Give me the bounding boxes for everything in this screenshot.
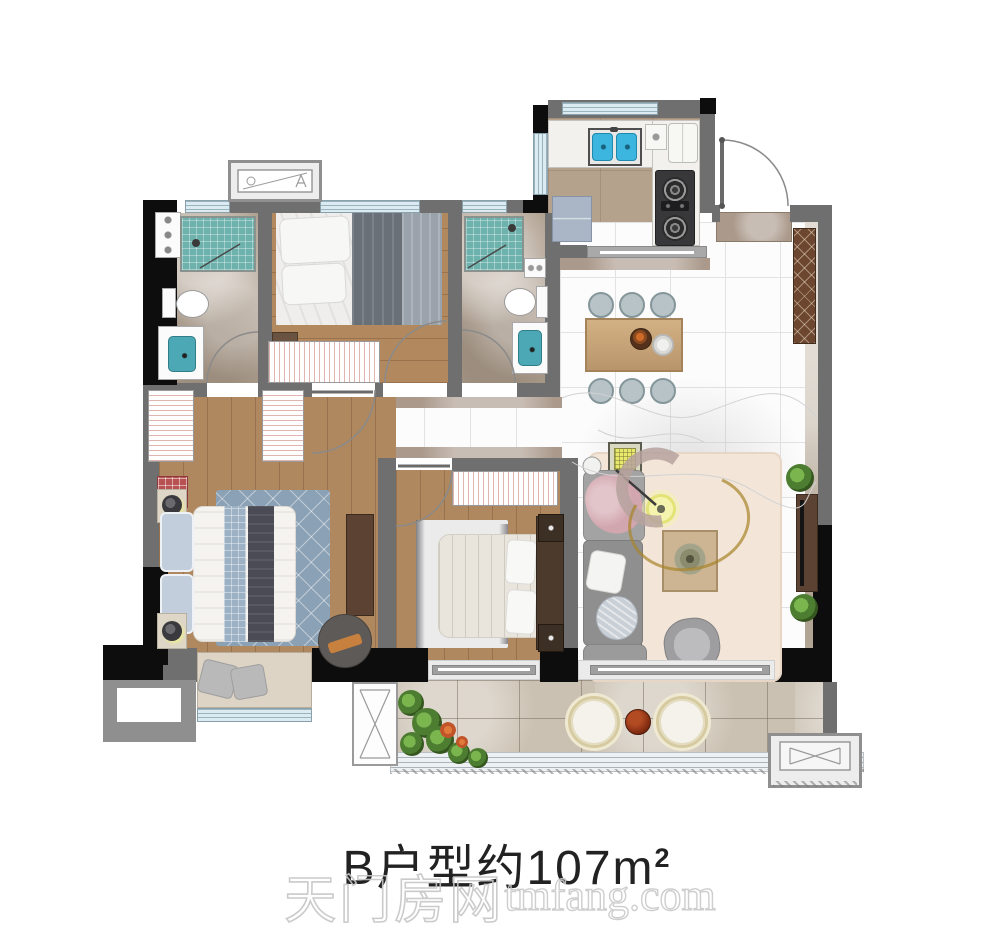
balcony-seat (656, 696, 708, 748)
toilet-tank-1 (162, 288, 176, 318)
window (320, 200, 420, 213)
structural-column (540, 648, 578, 682)
hinge-dot (719, 137, 725, 143)
sliding-door-handle (600, 251, 694, 254)
wall-segment (517, 383, 560, 397)
structural-column (533, 195, 548, 213)
bed-1-duvet (352, 213, 402, 325)
hallway-marble-strip (378, 397, 562, 408)
bay-window-cushion (229, 663, 268, 700)
tv-screen (800, 500, 804, 586)
shoe-cabinet (793, 228, 816, 344)
wall-segment (700, 100, 715, 213)
bed-1-duvet-light (402, 213, 442, 325)
dining-chair (650, 292, 676, 318)
dining-chair (619, 292, 645, 318)
dining-chair (619, 378, 645, 404)
wall-segment (378, 458, 396, 658)
ac-platform-left-inner (117, 688, 181, 722)
wall-segment (452, 458, 562, 471)
wall-segment (420, 200, 462, 213)
balcony-flowers (440, 722, 456, 738)
sliding-door-handle (598, 668, 762, 671)
dining-chair (650, 378, 676, 404)
toilet-tank-2 (536, 286, 548, 318)
cutting-board (668, 123, 698, 163)
hallway-floor (378, 408, 562, 447)
hallway-marble-strip-2 (378, 447, 562, 458)
master-bed-pillow (160, 512, 194, 572)
vanity-basin-1 (168, 336, 196, 372)
ac-platform-top (228, 160, 322, 202)
sofa-pillow (585, 549, 627, 595)
window (185, 200, 230, 213)
sink-drainer (645, 124, 667, 150)
bed-dark-throw (248, 506, 274, 642)
table-plate (652, 334, 674, 356)
watermark-latin: tmfang.com (504, 870, 715, 921)
floor-lamp (641, 489, 681, 529)
nightstand-bedroom-2 (538, 624, 564, 652)
refrigerator (552, 196, 592, 242)
window (462, 200, 507, 213)
balcony-flowers (456, 736, 468, 748)
potted-plant (790, 594, 818, 622)
door-hinges (719, 137, 725, 209)
wall-segment (818, 222, 832, 525)
bath-shelf (524, 258, 546, 278)
bedside-lamp (162, 621, 182, 641)
floor-plan-page: B户型约107m2 天门房网 tmfang.com (0, 0, 1000, 943)
wardrobe-bedroom-2 (452, 471, 558, 506)
wardrobe-bedroom-1 (268, 341, 380, 383)
coffee-table-plant (671, 539, 709, 579)
ac-platform-hatch (773, 781, 857, 787)
shower-area-1 (180, 216, 256, 272)
entry-threshold (716, 212, 792, 242)
wall-segment (375, 383, 383, 397)
table-flowers (630, 328, 652, 350)
shower-area-2 (464, 216, 524, 272)
wall-segment (448, 213, 462, 383)
tv-cabinet-master (346, 514, 374, 616)
structural-column (103, 645, 163, 680)
armchair-cushion (674, 628, 710, 662)
balcony-ac-box (352, 682, 398, 766)
bed-1-pillow (279, 215, 351, 265)
sliding-door-handle (438, 668, 530, 671)
rug-ink-edge (416, 520, 425, 648)
kitchen-side-window (533, 133, 548, 195)
balcony-plant (400, 732, 424, 756)
bed-plaid-runner (224, 506, 246, 642)
toilet-2 (504, 288, 536, 316)
balcony-side-table (625, 709, 651, 735)
kitchen-window (562, 102, 658, 115)
sink-basin-left (592, 133, 613, 161)
vanity-basin-2 (518, 330, 542, 366)
stove-burner (659, 212, 691, 244)
wall-segment (790, 205, 832, 222)
sink-basin-right (616, 133, 637, 161)
stove-knobs (661, 201, 689, 211)
sofa-knit-pillow (596, 596, 638, 640)
entry-door-arc (722, 140, 788, 206)
wall-segment (447, 383, 462, 397)
bed-1-pillow (281, 262, 347, 305)
dining-chair (588, 378, 614, 404)
wardrobe-master-2 (262, 390, 304, 462)
washing-machine (155, 212, 181, 258)
toilet-1 (176, 290, 209, 318)
speaker-grille (614, 448, 636, 470)
ac-platform-right (768, 733, 862, 788)
balcony-plant (468, 748, 488, 768)
wall-segment (823, 682, 837, 737)
bay-window (197, 708, 312, 722)
structural-column (533, 105, 548, 135)
watermark: 天门房网 tmfang.com (284, 858, 715, 933)
potted-plant (786, 464, 814, 492)
wall-segment (507, 200, 523, 213)
watermark-chinese: 天门房网 (284, 858, 504, 933)
sink-faucet (610, 127, 618, 132)
dining-chair (588, 292, 614, 318)
structural-column (700, 98, 716, 114)
balcony-seat (568, 696, 620, 748)
bed-2-pillow (505, 539, 538, 585)
wardrobe-master-1 (148, 390, 194, 462)
nightstand-bedroom-2 (538, 514, 564, 542)
bed-2-pillow (505, 589, 538, 635)
kitchen-threshold (548, 258, 710, 270)
wall-segment (712, 205, 720, 222)
